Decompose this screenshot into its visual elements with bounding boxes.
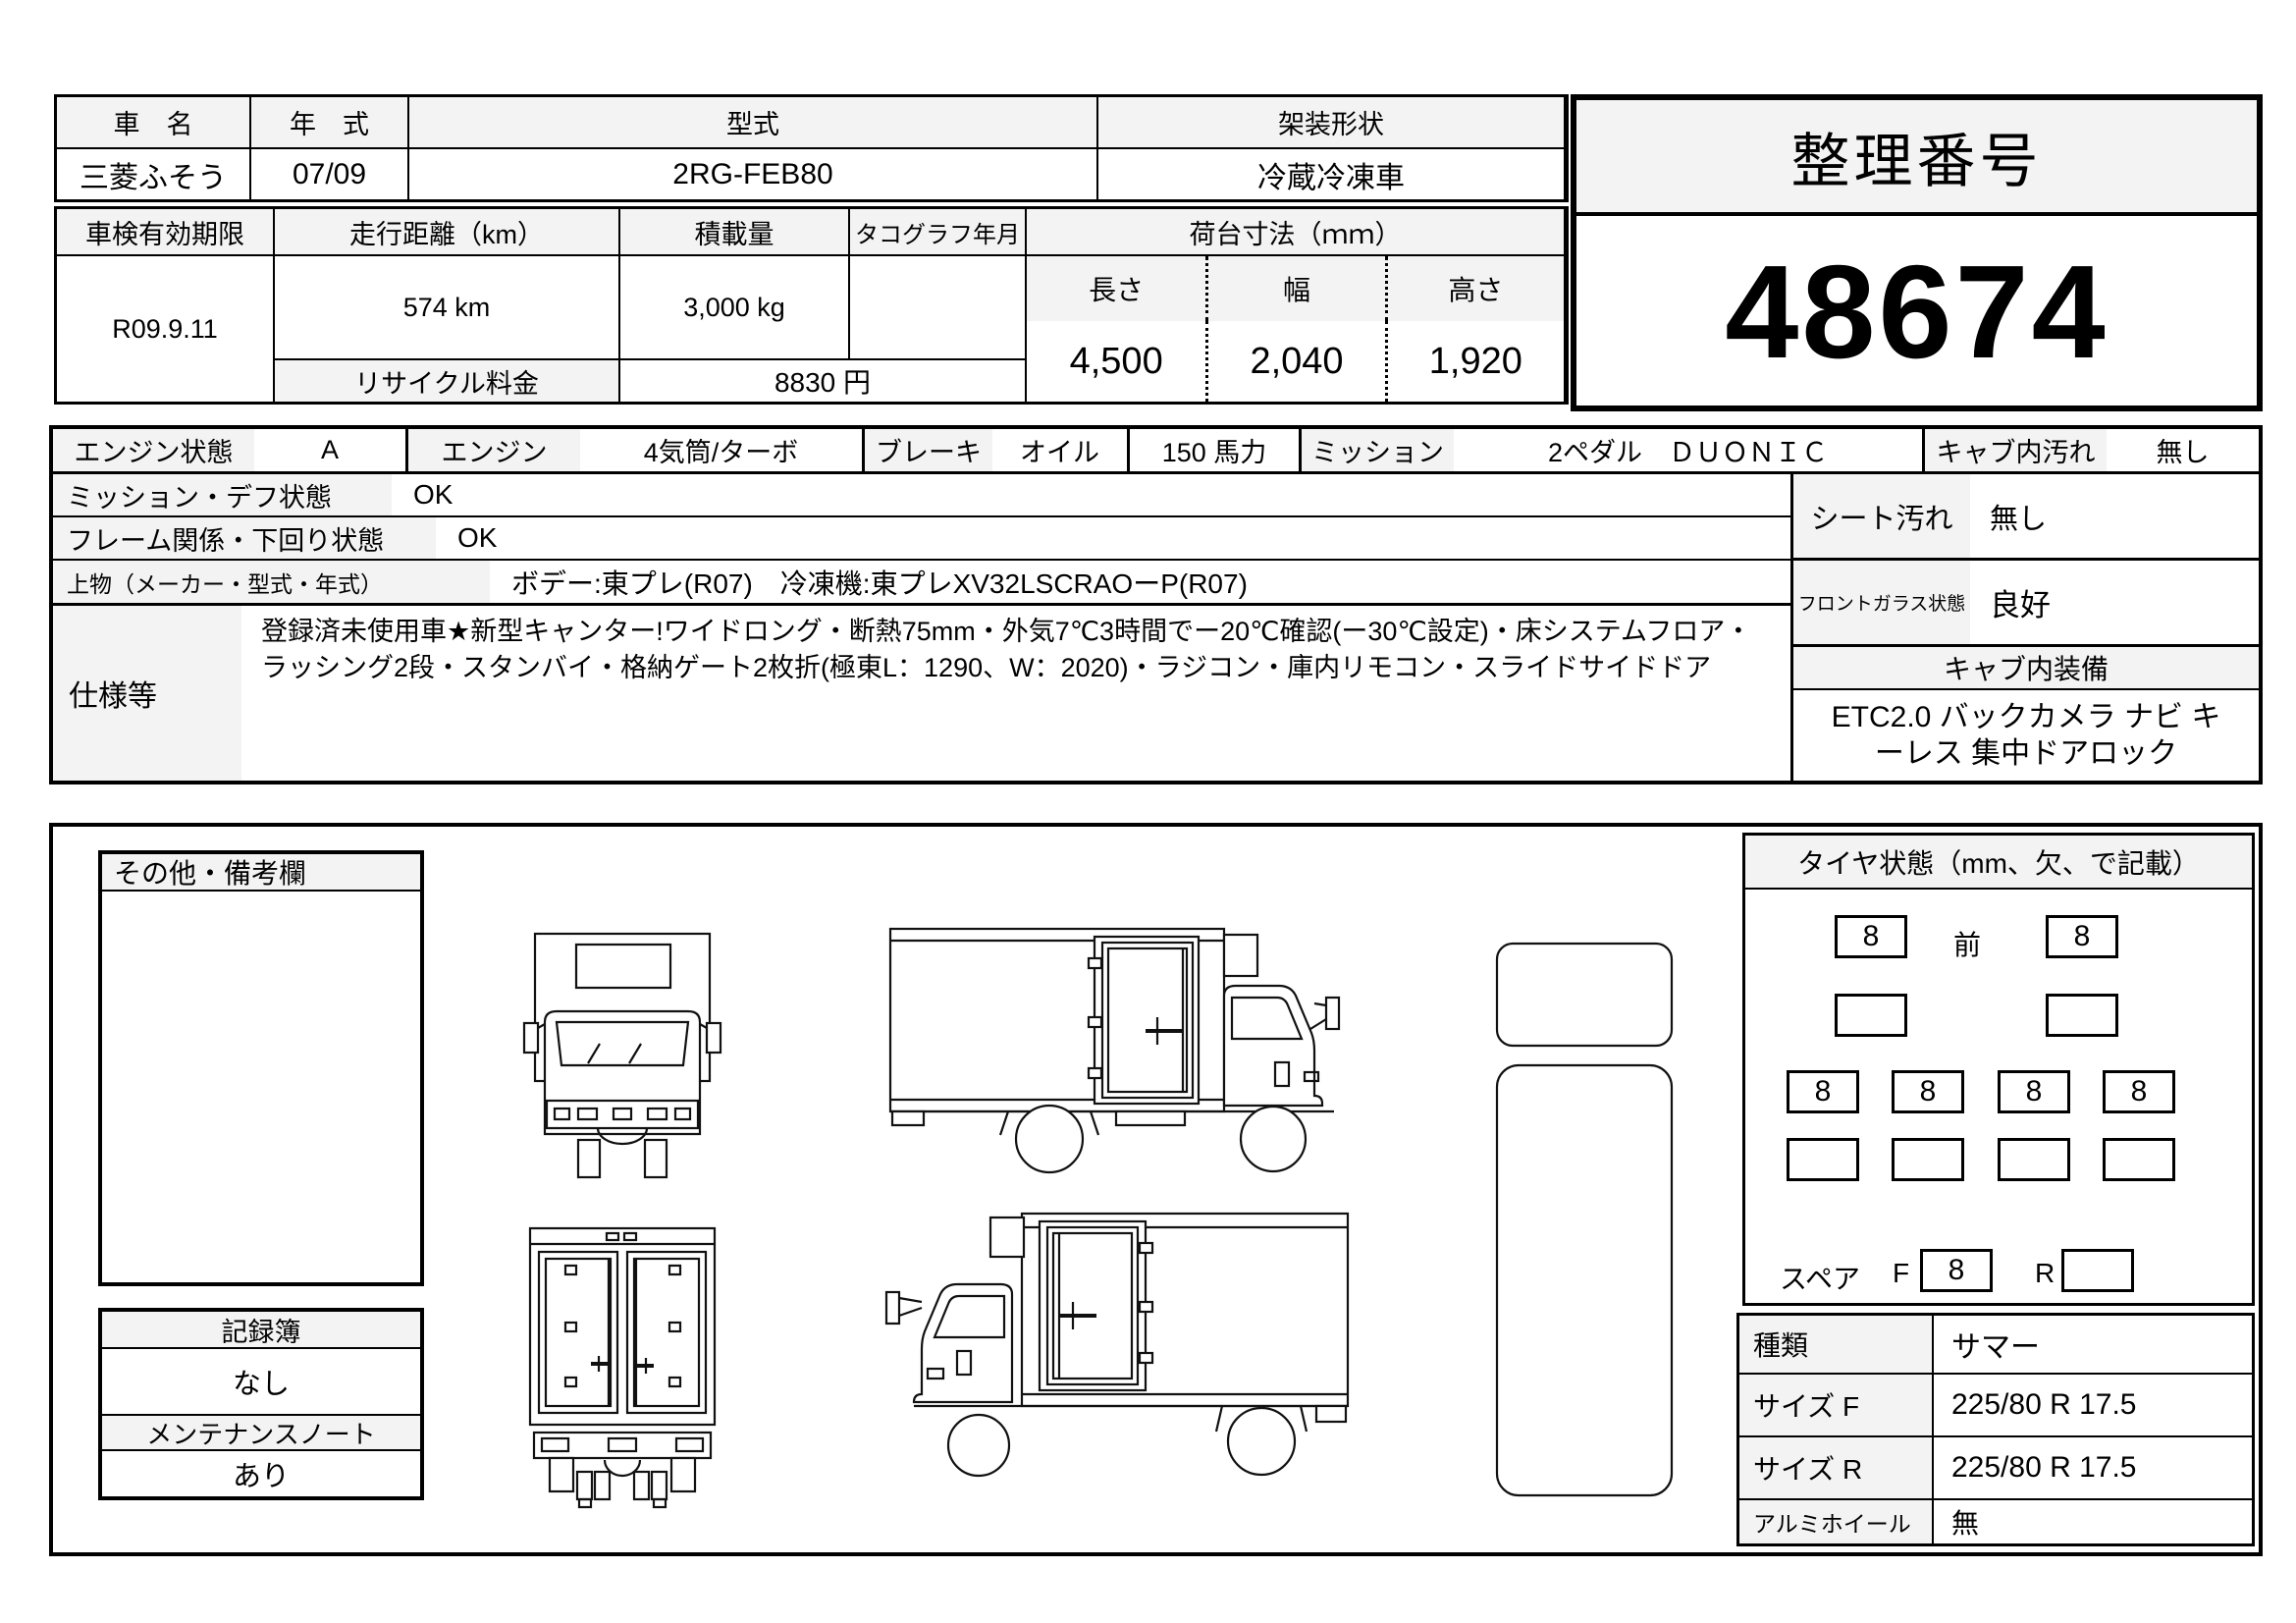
windshield-label: フロントガラス状態 — [1793, 561, 1970, 644]
horsepower-value: 150 馬力 — [1130, 429, 1302, 471]
brake-label: ブレーキ — [865, 429, 992, 471]
tire-rear-box-8 — [2103, 1138, 2175, 1181]
shaken-expiry-value: R09.9.11 — [57, 256, 273, 402]
spare-f-box: 8 — [1920, 1249, 1993, 1292]
truck-side-right-view-drawing — [882, 913, 1363, 1198]
tachograph-value — [850, 256, 1025, 358]
record-book-value: なし — [102, 1349, 420, 1414]
tire-type-value: サマー — [1934, 1316, 2252, 1373]
recycle-fee-label: リサイクル料金 — [275, 360, 618, 402]
body-unit-label: 上物（メーカー・型式・年式） — [53, 561, 490, 603]
records-box: 記録簿 なし メンテナンスノート あり — [98, 1308, 424, 1500]
alloy-wheel-value: 無 — [1934, 1500, 2252, 1543]
tachograph-label: タコグラフ年月 — [850, 209, 1025, 254]
bed-width-label: 幅 — [1205, 256, 1384, 321]
inspection-table: 車検有効期限 走行距離（km） 積載量 タコグラフ年月 荷台寸法（ｍｍ） R09… — [54, 206, 1569, 405]
engine-state-label: エンジン状態 — [53, 429, 254, 471]
truck-side-left-view-drawing — [873, 1206, 1363, 1505]
truck-front-view-drawing — [519, 928, 725, 1183]
mileage-value: 574 km — [275, 256, 618, 358]
condition-row-mission-diff: ミッション・デフ状態 OK — [53, 474, 1790, 517]
bed-width-value: 2,040 — [1205, 321, 1384, 402]
spare-f-label: F — [1893, 1258, 1909, 1289]
tire-rear-box-1: 8 — [1787, 1070, 1859, 1113]
frame-value: OK — [436, 522, 497, 554]
shaken-expiry-label: 車検有効期限 — [57, 209, 273, 254]
vehicle-name-value: 三菱ふそう — [57, 149, 249, 199]
condition-band: エンジン状態 A エンジン 4気筒/ターボ ブレーキ オイル 150 馬力 ミッ… — [49, 425, 2263, 784]
tire-rear-box-3: 8 — [1998, 1070, 2070, 1113]
bed-length-value: 4,500 — [1027, 321, 1205, 402]
brake-value: オイル — [992, 429, 1130, 471]
reference-number-label: 整理番号 — [1576, 100, 2257, 216]
alloy-wheel-label: アルミホイール — [1739, 1500, 1932, 1543]
tire-front-left-box-2 — [1835, 994, 1907, 1037]
maintenance-note-value: あり — [102, 1451, 420, 1496]
tire-size-r-value: 225/80 R 17.5 — [1934, 1437, 2252, 1498]
bed-height-value: 1,920 — [1385, 321, 1564, 402]
frame-label: フレーム関係・下回り状態 — [53, 517, 436, 559]
engine-state-value: A — [254, 429, 408, 471]
cab-dirt-value: 無し — [2107, 429, 2259, 471]
payload-value: 3,000 kg — [620, 256, 848, 358]
body-unit-value: ボデー:東プレ(R07) 冷凍機:東プレXV32LSCRAOーP(R07) — [490, 563, 1248, 602]
tire-panel-label: タイヤ状態（mm、欠、で記載） — [1745, 836, 2252, 890]
tire-front-right-box-2 — [2046, 994, 2118, 1037]
mission-diff-label: ミッション・デフ状態 — [53, 474, 392, 515]
cab-equipment-value: ETC2.0 バックカメラ ナビ キーレス 集中ドアロック — [1793, 690, 2259, 781]
model-code-value: 2RG-FEB80 — [409, 149, 1096, 199]
tire-size-f-value: 225/80 R 17.5 — [1934, 1375, 2252, 1435]
transmission-label: ミッション — [1302, 429, 1454, 471]
bed-dimensions-label: 荷台寸法（ｍｍ） — [1027, 209, 1564, 254]
tire-size-r-label: サイズ R — [1739, 1437, 1932, 1498]
body-style-value: 冷蔵冷凍車 — [1098, 149, 1564, 199]
tire-rear-box-5 — [1787, 1138, 1859, 1181]
cab-dirt-label: キャブ内汚れ — [1925, 429, 2107, 471]
vehicle-info-table: 車 名 年 式 型式 架装形状 三菱ふそう 07/09 2RG-FEB80 冷蔵… — [54, 94, 1569, 202]
seat-dirt-row: シート汚れ 無し — [1793, 474, 2259, 561]
remarks-box: その他・備考欄 — [98, 850, 424, 1286]
vehicle-name-label: 車 名 — [57, 97, 249, 147]
tire-front-left-box: 8 — [1835, 915, 1907, 958]
condition-left-column: ミッション・デフ状態 OK フレーム関係・下回り状態 OK 上物（メーカー・型式… — [53, 474, 1793, 781]
condition-row-spec: 仕様等 登録済未使用車★新型キャンター!ワイドロング・断熱75mm・外気7℃3時… — [53, 606, 1790, 781]
condition-row-engine: エンジン状態 A エンジン 4気筒/ターボ ブレーキ オイル 150 馬力 ミッ… — [53, 429, 2259, 474]
reference-number-box: 整理番号 48674 — [1571, 94, 2263, 411]
cab-equipment-label: キャブ内装備 — [1793, 647, 2259, 690]
seat-dirt-value: 無し — [1970, 496, 2047, 537]
tire-size-table: 種類 サマー サイズ F 225/80 R 17.5 サイズ R 225/80 … — [1736, 1313, 2255, 1546]
tire-rear-box-6 — [1892, 1138, 1964, 1181]
spare-label: スペア — [1780, 1258, 1860, 1297]
spec-text: 登録済未使用車★新型キャンター!ワイドロング・断熱75mm・外気7℃3時間でー2… — [241, 606, 1790, 781]
model-year-value: 07/09 — [251, 149, 407, 199]
tire-condition-panel: タイヤ状態（mm、欠、で記載） 8 前 8 8 8 8 8 スペア F 8 R — [1742, 833, 2255, 1306]
tire-size-f-label: サイズ F — [1739, 1375, 1932, 1435]
model-year-label: 年 式 — [251, 97, 407, 147]
condition-row-frame: フレーム関係・下回り状態 OK — [53, 517, 1790, 561]
condition-row-body-unit: 上物（メーカー・型式・年式） ボデー:東プレ(R07) 冷凍機:東プレXV32L… — [53, 561, 1790, 606]
mileage-label: 走行距離（km） — [275, 209, 618, 254]
engine-label: エンジン — [408, 429, 580, 471]
spare-r-box — [2061, 1249, 2134, 1292]
tire-rear-box-7 — [1998, 1138, 2070, 1181]
recycle-fee-value: 8830 円 — [620, 360, 1025, 402]
tire-rear-box-2: 8 — [1892, 1070, 1964, 1113]
record-book-label: 記録簿 — [102, 1312, 420, 1349]
engine-value: 4気筒/ターボ — [580, 429, 865, 471]
tire-rear-box-4: 8 — [2103, 1070, 2175, 1113]
truck-top-view-drawing — [1489, 938, 1681, 1502]
seat-dirt-label: シート汚れ — [1793, 474, 1970, 558]
tire-front-label: 前 — [1953, 924, 1981, 963]
payload-label: 積載量 — [620, 209, 848, 254]
bed-height-label: 高さ — [1385, 256, 1564, 321]
body-style-label: 架装形状 — [1098, 97, 1564, 147]
truck-rear-view-drawing — [522, 1220, 723, 1510]
model-code-label: 型式 — [409, 97, 1096, 147]
bed-dimensions-grid: 長さ 幅 高さ 4,500 2,040 1,920 — [1027, 256, 1564, 402]
reference-number-value: 48674 — [1576, 216, 2257, 407]
maintenance-note-label: メンテナンスノート — [102, 1414, 420, 1451]
remarks-label: その他・備考欄 — [102, 854, 420, 892]
tire-front-right-box: 8 — [2046, 915, 2118, 958]
transmission-value: 2ペダル ＤＵＯＮＩＣ — [1454, 429, 1925, 471]
tire-type-label: 種類 — [1739, 1316, 1932, 1373]
bottom-band: その他・備考欄 記録簿 なし メンテナンスノート あり — [49, 823, 2263, 1556]
bed-length-label: 長さ — [1027, 256, 1205, 321]
windshield-value: 良好 — [1970, 580, 2051, 624]
spare-r-label: R — [2035, 1258, 2055, 1289]
mission-diff-value: OK — [392, 479, 453, 511]
windshield-row: フロントガラス状態 良好 — [1793, 561, 2259, 647]
spec-label: 仕様等 — [53, 606, 241, 781]
condition-right-column: シート汚れ 無し フロントガラス状態 良好 キャブ内装備 ETC2.0 バックカ… — [1793, 474, 2259, 781]
